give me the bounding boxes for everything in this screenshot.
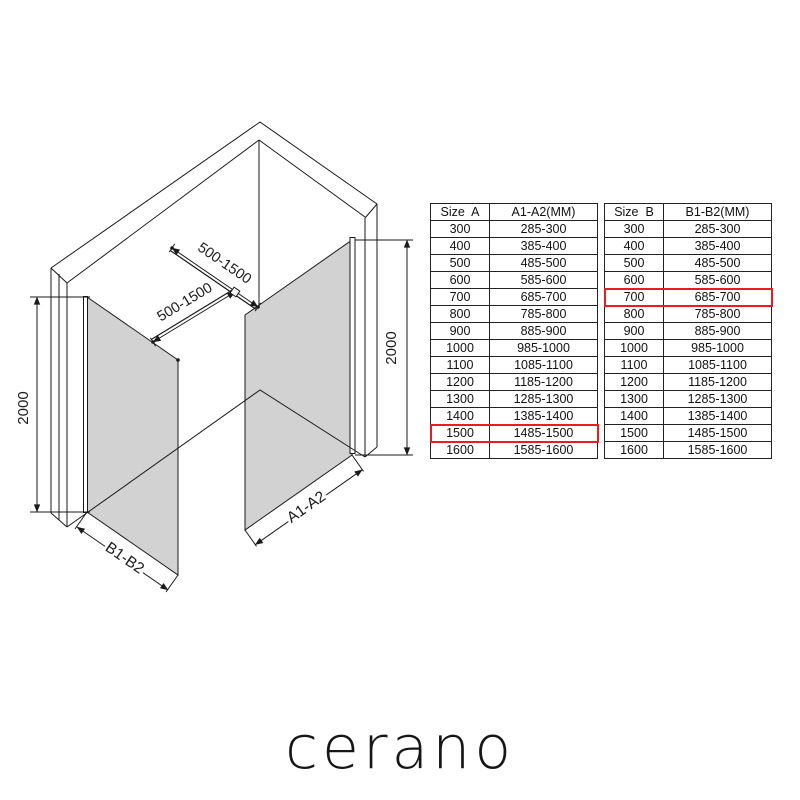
table-cell: 1100 — [431, 357, 490, 374]
shower-diagram: 500-1500 500-1500 2000 2000 B1-B2 A1-A2 — [0, 90, 430, 635]
brand-logo: cerano — [0, 716, 800, 780]
table-cell: 300 — [431, 221, 490, 238]
table-cell: 985-1000 — [664, 340, 772, 357]
table-cell: 1185-1200 — [490, 374, 598, 391]
table-cell: 285-300 — [664, 221, 772, 238]
table-cell: 485-500 — [664, 255, 772, 272]
product-spec-sheet: 500-1500 500-1500 2000 2000 B1-B2 A1-A2 … — [0, 0, 800, 800]
table-cell: 1385-1400 — [490, 408, 598, 425]
table-row: 16001585-1600 — [431, 442, 598, 459]
table-row: 500485-500 — [431, 255, 598, 272]
table-cell: 600 — [431, 272, 490, 289]
table-row: 14001385-1400 — [431, 408, 598, 425]
table-cell: 1585-1600 — [664, 442, 772, 459]
table-cell: 800 — [605, 306, 664, 323]
dimension-height-left — [30, 297, 90, 512]
table-cell: 600 — [605, 272, 664, 289]
table-cell: 1600 — [431, 442, 490, 459]
table-cell: 700 — [605, 289, 664, 306]
table-row: 12001185-1200 — [431, 374, 598, 391]
table-cell: 1285-1300 — [664, 391, 772, 408]
header-row: Size AA1-A2(MM) — [431, 204, 598, 221]
wall-profile-panel-a — [350, 238, 355, 454]
size-b-table: Size BB1-B2(MM)300285-300400385-40050048… — [604, 203, 772, 459]
size-table-b: Size BB1-B2(MM)300285-300400385-40050048… — [604, 203, 772, 459]
column-header: Size A — [431, 204, 490, 221]
table-row: 15001485-1500 — [431, 425, 598, 442]
table-row: 16001585-1600 — [605, 442, 772, 459]
table-row: 900885-900 — [431, 323, 598, 340]
table-cell: 1000 — [605, 340, 664, 357]
table-cell: 1500 — [605, 425, 664, 442]
table-row: 600585-600 — [431, 272, 598, 289]
table-row: 11001085-1100 — [605, 357, 772, 374]
table-cell: 385-400 — [664, 238, 772, 255]
table-row: 700685-700 — [431, 289, 598, 306]
glass-panel-b — [87, 297, 178, 575]
table-cell: 1200 — [605, 374, 664, 391]
table-cell: 900 — [605, 323, 664, 340]
table-cell: 1500 — [431, 425, 490, 442]
table-cell: 1485-1500 — [490, 425, 598, 442]
size-a-table: Size AA1-A2(MM)300285-300400385-40050048… — [430, 203, 598, 459]
table-cell: 900 — [431, 323, 490, 340]
height-left-label: 2000 — [15, 391, 32, 424]
table-row: 14001385-1400 — [605, 408, 772, 425]
table-cell: 400 — [605, 238, 664, 255]
table-cell: 885-900 — [490, 323, 598, 340]
table-cell: 485-500 — [490, 255, 598, 272]
table-row: 900885-900 — [605, 323, 772, 340]
table-row: 600585-600 — [605, 272, 772, 289]
table-cell: 800 — [431, 306, 490, 323]
table-cell: 785-800 — [490, 306, 598, 323]
table-cell: 785-800 — [664, 306, 772, 323]
table-row: 300285-300 — [605, 221, 772, 238]
wall-profile-panel-b — [84, 297, 88, 513]
table-row: 12001185-1200 — [605, 374, 772, 391]
table-row: 800785-800 — [605, 306, 772, 323]
table-row: 500485-500 — [605, 255, 772, 272]
table-cell: 685-700 — [664, 289, 772, 306]
table-cell: 500 — [605, 255, 664, 272]
table-cell: 1400 — [605, 408, 664, 425]
table-cell: 500 — [431, 255, 490, 272]
table-cell: 1400 — [431, 408, 490, 425]
table-cell: 1300 — [605, 391, 664, 408]
column-header: B1-B2(MM) — [664, 204, 772, 221]
table-cell: 300 — [605, 221, 664, 238]
table-row: 1000985-1000 — [431, 340, 598, 357]
table-cell: 400 — [431, 238, 490, 255]
table-cell: 385-400 — [490, 238, 598, 255]
table-cell: 585-600 — [664, 272, 772, 289]
table-cell: 885-900 — [664, 323, 772, 340]
size-table-a: Size AA1-A2(MM)300285-300400385-40050048… — [430, 203, 598, 459]
table-row: 800785-800 — [431, 306, 598, 323]
table-cell: 1100 — [605, 357, 664, 374]
table-cell: 1485-1500 — [664, 425, 772, 442]
column-header: A1-A2(MM) — [490, 204, 598, 221]
table-cell: 1600 — [605, 442, 664, 459]
table-cell: 1285-1300 — [490, 391, 598, 408]
table-cell: 1085-1100 — [664, 357, 772, 374]
table-cell: 700 — [431, 289, 490, 306]
table-cell: 1085-1100 — [490, 357, 598, 374]
table-row: 400385-400 — [605, 238, 772, 255]
table-cell: 1000 — [431, 340, 490, 357]
height-right-label: 2000 — [383, 331, 400, 364]
table-cell: 285-300 — [490, 221, 598, 238]
table-row: 13001285-1300 — [605, 391, 772, 408]
table-row: 300285-300 — [431, 221, 598, 238]
table-row: 11001085-1100 — [431, 357, 598, 374]
header-row: Size BB1-B2(MM) — [605, 204, 772, 221]
table-row: 400385-400 — [431, 238, 598, 255]
column-header: Size B — [605, 204, 664, 221]
table-cell: 1585-1600 — [490, 442, 598, 459]
table-cell: 585-600 — [490, 272, 598, 289]
table-row: 1000985-1000 — [605, 340, 772, 357]
glass-panel-a — [245, 240, 352, 530]
table-cell: 1185-1200 — [664, 374, 772, 391]
table-cell: 1385-1400 — [664, 408, 772, 425]
table-cell: 685-700 — [490, 289, 598, 306]
table-cell: 1200 — [431, 374, 490, 391]
bar-a-range-label: 500-1500 — [194, 240, 254, 288]
table-row: 700685-700 — [605, 289, 772, 306]
table-cell: 1300 — [431, 391, 490, 408]
table-row: 13001285-1300 — [431, 391, 598, 408]
table-row: 15001485-1500 — [605, 425, 772, 442]
table-cell: 985-1000 — [490, 340, 598, 357]
